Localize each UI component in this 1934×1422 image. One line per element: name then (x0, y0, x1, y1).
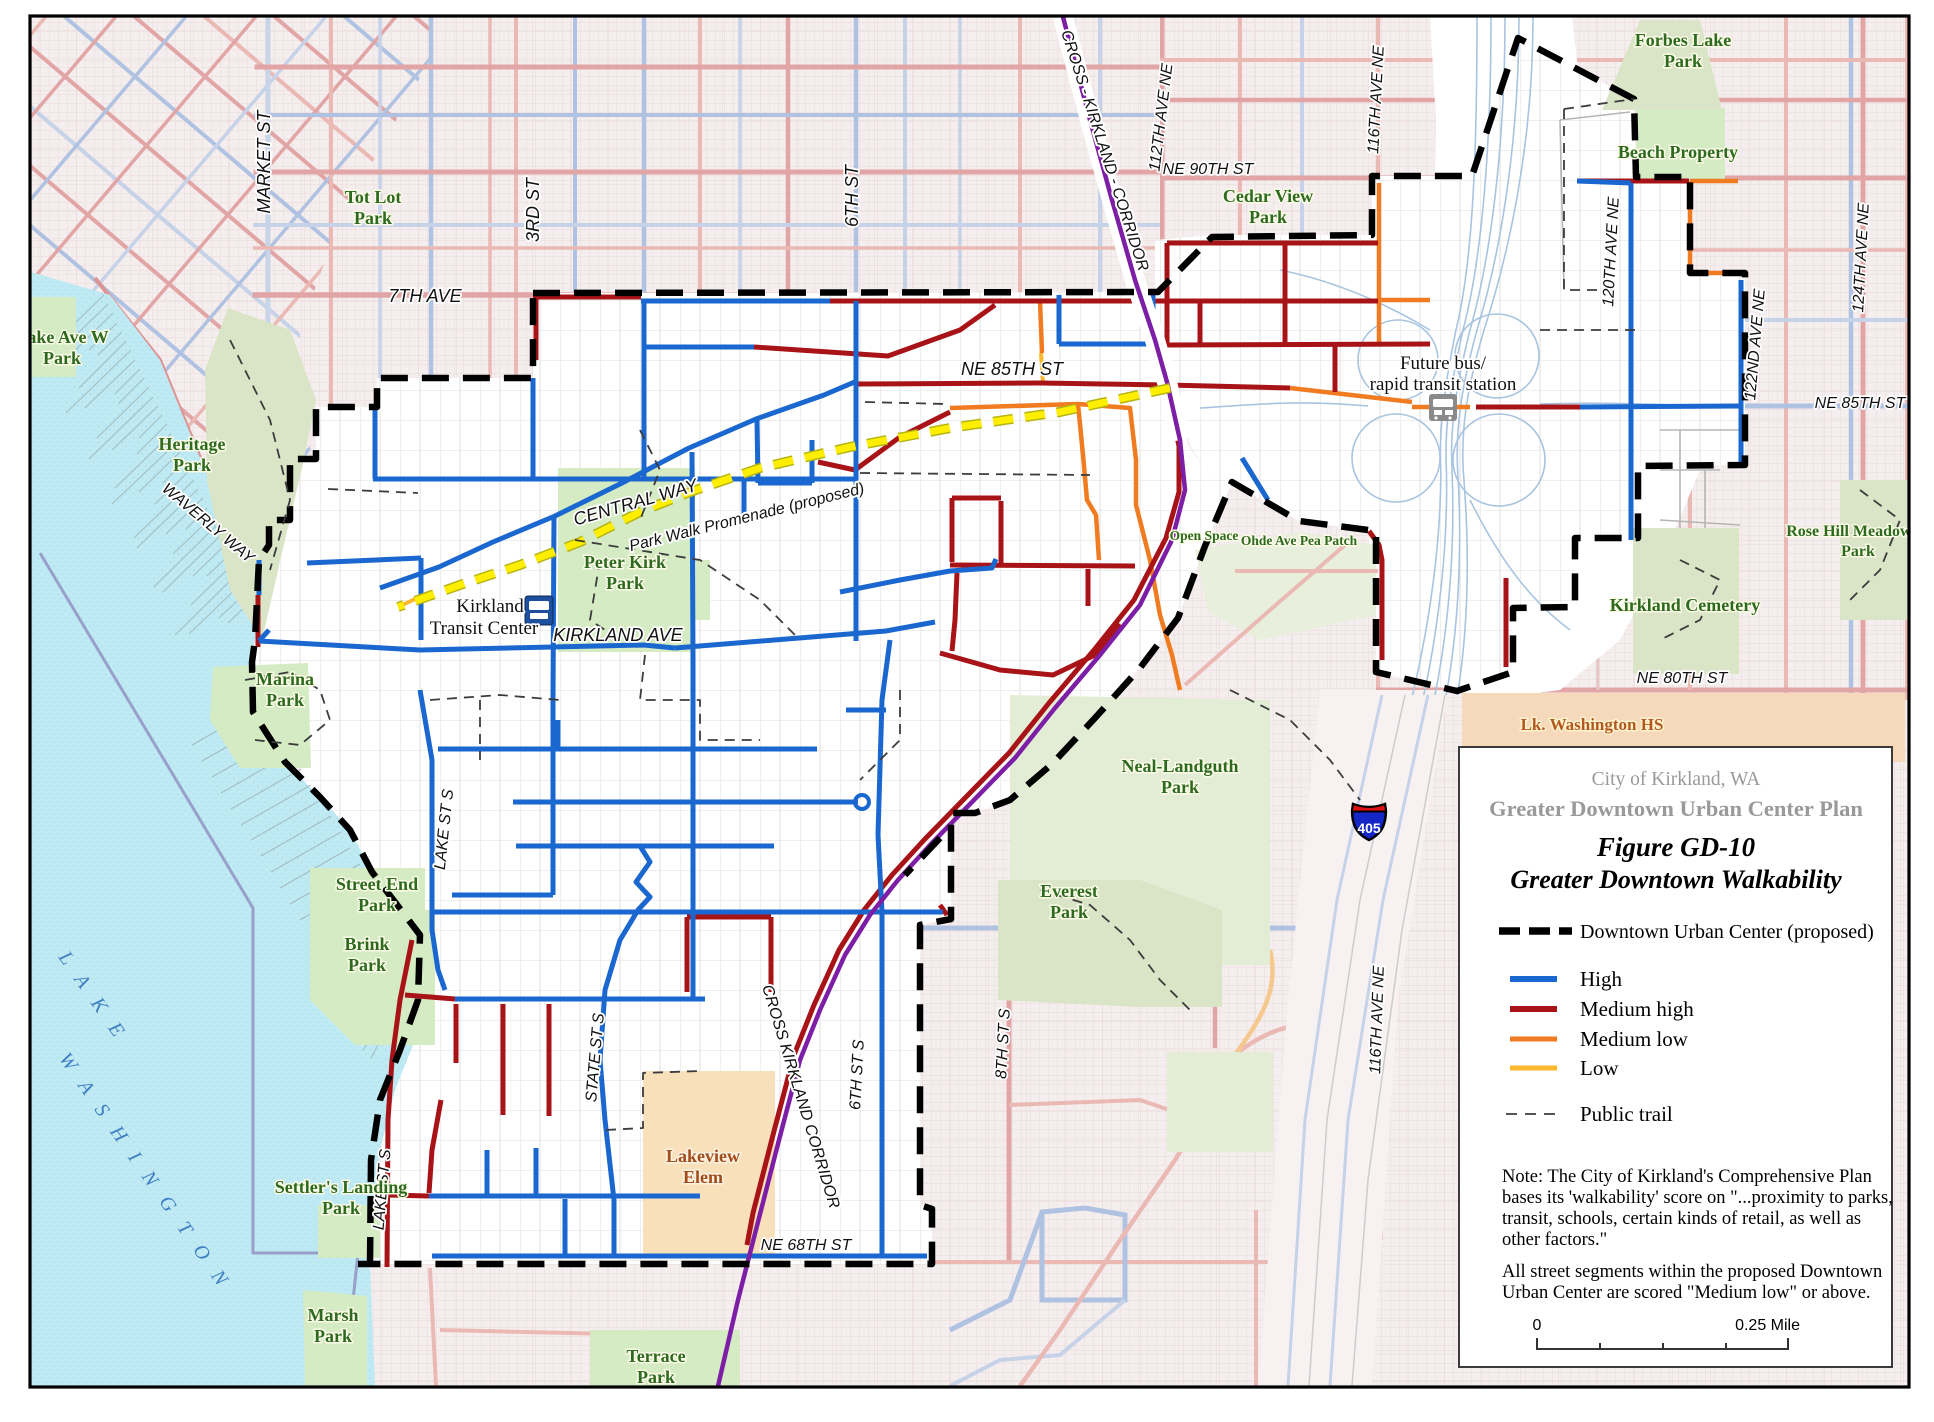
svg-text:Park: Park (637, 1367, 675, 1387)
svg-text:Tot Lot: Tot Lot (345, 187, 402, 207)
svg-text:Terrace: Terrace (626, 1346, 685, 1366)
svg-text:Public trail: Public trail (1580, 1102, 1673, 1126)
svg-text:Everest: Everest (1040, 881, 1098, 901)
svg-text:Ohde Ave Pea Patch: Ohde Ave Pea Patch (1241, 533, 1358, 548)
svg-text:0: 0 (1533, 1317, 1542, 1334)
svg-text:Street End: Street End (336, 874, 418, 894)
svg-text:Kirkland Cemetery: Kirkland Cemetery (1610, 595, 1760, 615)
svg-text:Park: Park (354, 208, 392, 228)
svg-text:Note: The City of Kirkland's: Note: The City of Kirkland's Comprehensi… (1502, 1167, 1872, 1187)
svg-text:NE 80TH ST: NE 80TH ST (1637, 670, 1729, 687)
svg-text:Lakeview: Lakeview (666, 1146, 740, 1166)
svg-text:other factors.": other factors." (1502, 1230, 1607, 1250)
svg-text:Peter Kirk: Peter Kirk (584, 552, 666, 572)
svg-text:Park: Park (358, 895, 396, 915)
svg-text:Medium high: Medium high (1580, 997, 1694, 1021)
svg-text:Park: Park (173, 455, 211, 475)
svg-text:Park: Park (266, 690, 304, 710)
svg-text:Elem: Elem (683, 1167, 723, 1187)
svg-text:High: High (1580, 967, 1623, 991)
svg-text:Park: Park (1249, 207, 1287, 227)
svg-text:Park: Park (322, 1198, 360, 1218)
svg-text:City of Kirkland, WA: City of Kirkland, WA (1592, 769, 1761, 790)
svg-text:Urban Center are scored "Mediu: Urban Center are scored "Medium low" or … (1502, 1283, 1871, 1303)
svg-text:Future bus/: Future bus/ (1400, 353, 1487, 374)
svg-text:Figure GD-10: Figure GD-10 (1596, 832, 1756, 862)
svg-text:Rose Hill Meadows: Rose Hill Meadows (1786, 523, 1918, 540)
svg-text:KIRKLAND AVE: KIRKLAND AVE (553, 625, 683, 645)
svg-text:NE 90TH ST: NE 90TH ST (1163, 161, 1255, 178)
svg-text:Settler's Landing: Settler's Landing (275, 1177, 408, 1197)
svg-text:MARKET ST: MARKET ST (254, 108, 274, 213)
svg-text:Heritage: Heritage (159, 434, 226, 454)
svg-text:Park: Park (43, 348, 81, 368)
svg-text:All street segments within the: All street segments within the proposed … (1502, 1262, 1882, 1282)
svg-text:bases its 'walkability' score: bases its 'walkability' score on "...pro… (1502, 1188, 1893, 1208)
svg-text:Park: Park (1841, 543, 1875, 560)
svg-text:transit, schools, certain kind: transit, schools, certain kinds of retai… (1502, 1209, 1861, 1229)
svg-text:Park: Park (348, 955, 386, 975)
svg-text:Park: Park (606, 573, 644, 593)
svg-text:Cedar View: Cedar View (1223, 186, 1313, 206)
svg-text:Marsh: Marsh (308, 1305, 359, 1325)
svg-text:0.25 Mile: 0.25 Mile (1735, 1317, 1800, 1334)
svg-text:NE 85TH ST: NE 85TH ST (961, 359, 1065, 379)
svg-text:Brink: Brink (344, 934, 389, 954)
svg-text:6TH ST: 6TH ST (842, 163, 862, 227)
svg-text:7TH AVE: 7TH AVE (388, 286, 462, 306)
svg-text:rapid transit station: rapid transit station (1370, 374, 1517, 395)
svg-text:Downtown Urban Center (propose: Downtown Urban Center (proposed) (1580, 921, 1874, 943)
svg-text:Transit Center: Transit Center (430, 618, 539, 639)
svg-text:Low: Low (1580, 1056, 1619, 1080)
svg-text:Neal-Landguth: Neal-Landguth (1121, 756, 1238, 776)
svg-text:NE 68TH ST: NE 68TH ST (761, 1237, 853, 1254)
svg-text:Marina: Marina (256, 669, 314, 689)
svg-text:NE 85TH ST: NE 85TH ST (1815, 395, 1907, 412)
svg-text:Greater Downtown Urban Center: Greater Downtown Urban Center Plan (1489, 796, 1863, 821)
svg-text:Open Space: Open Space (1170, 528, 1239, 543)
svg-text:Park: Park (1664, 51, 1702, 71)
svg-text:Park: Park (1161, 777, 1199, 797)
svg-text:Forbes Lake: Forbes Lake (1635, 30, 1732, 50)
svg-text:Park: Park (1050, 902, 1088, 922)
svg-text:Greater Downtown Walkability: Greater Downtown Walkability (1510, 865, 1842, 894)
svg-text:Park: Park (314, 1326, 352, 1346)
svg-text:Medium low: Medium low (1580, 1027, 1689, 1051)
svg-text:Lk. Washington HS: Lk. Washington HS (1521, 715, 1664, 734)
svg-text:3RD ST: 3RD ST (523, 176, 543, 242)
svg-text:Kirkland: Kirkland (456, 596, 524, 617)
svg-text:405: 405 (1357, 820, 1381, 836)
svg-text:Beach Property: Beach Property (1618, 142, 1738, 162)
